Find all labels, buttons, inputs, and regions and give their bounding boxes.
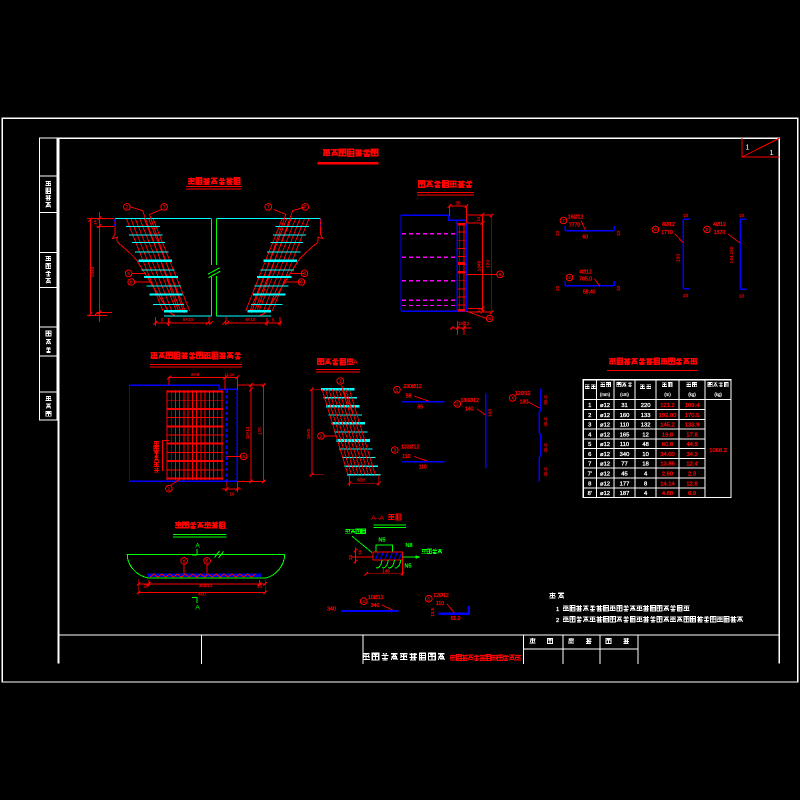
svg-text:4Ø12: 4Ø12 — [579, 269, 592, 275]
svg-text:10Ø12: 10Ø12 — [368, 595, 384, 601]
svg-text:34.00: 34.00 — [660, 452, 675, 458]
svg-text:148: 148 — [382, 568, 390, 573]
svg-text:6: 6 — [706, 227, 709, 232]
svg-text:170.5: 170.5 — [685, 413, 700, 419]
svg-text:12.8: 12.8 — [686, 481, 697, 487]
svg-text:ø12: ø12 — [600, 452, 610, 458]
svg-text:45.0: 45.0 — [543, 467, 549, 477]
svg-text:16×8: 16×8 — [306, 428, 311, 439]
svg-text:110: 110 — [620, 442, 629, 448]
svg-text:2.60: 2.60 — [662, 472, 673, 478]
svg-text:5: 5 — [127, 271, 130, 276]
svg-text:14.14: 14.14 — [660, 481, 675, 487]
svg-text:N8: N8 — [406, 543, 413, 549]
svg-text:10: 10 — [683, 213, 689, 219]
svg-text:14: 14 — [476, 307, 481, 312]
svg-text:340: 340 — [371, 603, 380, 609]
svg-text:ø12: ø12 — [600, 413, 610, 419]
svg-text:ø12: ø12 — [600, 481, 610, 487]
svg-text:18: 18 — [642, 462, 648, 468]
svg-text:58,40: 58,40 — [583, 290, 596, 296]
svg-text:19.8: 19.8 — [662, 432, 673, 438]
svg-text:12.4: 12.4 — [686, 462, 698, 468]
svg-text:13.86: 13.86 — [660, 462, 675, 468]
svg-text:2: 2 — [168, 486, 171, 491]
svg-text:48: 48 — [642, 442, 648, 448]
svg-text:109.4: 109.4 — [685, 403, 700, 409]
svg-text:13.9: 13.9 — [430, 608, 435, 617]
svg-text:(kg): (kg) — [688, 392, 696, 397]
svg-text:8: 8 — [499, 272, 502, 277]
svg-text:340: 340 — [620, 452, 630, 458]
svg-text:10: 10 — [230, 492, 235, 497]
svg-text:17.8: 17.8 — [686, 432, 697, 438]
svg-text:8: 8 — [183, 559, 186, 564]
svg-text:45: 45 — [621, 472, 627, 478]
svg-text:(mm): (mm) — [600, 392, 611, 397]
svg-text:187: 187 — [620, 491, 630, 497]
svg-text:13×13: 13×13 — [245, 426, 250, 439]
svg-text:145.2: 145.2 — [660, 423, 675, 429]
svg-text:58: 58 — [406, 394, 412, 400]
svg-text:1048: 1048 — [90, 266, 96, 277]
svg-text:8: 8 — [588, 481, 591, 487]
svg-text:170: 170 — [486, 260, 492, 268]
svg-text:4.88: 4.88 — [662, 491, 673, 497]
svg-text:7: 7 — [304, 205, 307, 210]
svg-text:ø12: ø12 — [600, 462, 610, 468]
svg-text:1570: 1570 — [714, 230, 726, 236]
svg-text:1: 1 — [339, 379, 342, 384]
svg-text:150: 150 — [675, 254, 681, 262]
svg-text:14: 14 — [358, 550, 363, 555]
svg-text:24: 24 — [348, 555, 353, 560]
svg-text:132: 132 — [641, 423, 651, 429]
svg-text:2: 2 — [320, 434, 323, 439]
svg-text:8: 8 — [644, 481, 647, 487]
svg-text:(cm): (cm) — [620, 392, 629, 397]
svg-text:10: 10 — [739, 293, 745, 299]
svg-text:1: 1 — [396, 387, 399, 392]
svg-text:A: A — [195, 605, 200, 612]
svg-text:60: 60 — [583, 235, 589, 241]
svg-text:7: 7 — [126, 205, 129, 210]
svg-text:340: 340 — [327, 606, 336, 612]
svg-text:110: 110 — [436, 601, 444, 607]
svg-text:160: 160 — [488, 409, 494, 417]
svg-text:5: 5 — [300, 280, 303, 285]
svg-text:N5: N5 — [405, 564, 412, 570]
svg-text:110: 110 — [419, 465, 427, 471]
svg-text:10: 10 — [616, 231, 622, 237]
svg-text:1: 1 — [745, 143, 749, 152]
svg-text:4Ø12: 4Ø12 — [713, 222, 726, 228]
svg-text:2: 2 — [456, 402, 459, 407]
svg-text:1: 1 — [556, 607, 559, 613]
svg-text:A–A: A–A — [371, 515, 384, 522]
svg-text:4: 4 — [362, 599, 365, 604]
svg-text:4: 4 — [242, 454, 245, 459]
svg-text:1: 1 — [769, 148, 773, 157]
svg-text:7770: 7770 — [569, 222, 581, 228]
svg-text:1068.2: 1068.2 — [709, 448, 727, 454]
svg-text:165: 165 — [620, 432, 630, 438]
svg-text:177: 177 — [620, 481, 630, 487]
svg-text:(kg): (kg) — [714, 392, 722, 397]
svg-text:ø12: ø12 — [600, 442, 610, 448]
svg-text:133: 133 — [641, 413, 651, 419]
svg-text:5: 5 — [588, 442, 591, 448]
svg-text:ø12: ø12 — [600, 432, 610, 438]
svg-text:10: 10 — [555, 286, 561, 292]
svg-text:8×8: 8×8 — [191, 372, 199, 377]
svg-text:121.2: 121.2 — [660, 403, 675, 409]
svg-text:180: 180 — [520, 400, 529, 406]
svg-text:77: 77 — [621, 462, 627, 468]
svg-text:12Ø12: 12Ø12 — [515, 391, 531, 397]
svg-text:20: 20 — [257, 583, 263, 588]
svg-text:7: 7 — [267, 205, 270, 210]
svg-text:(m): (m) — [664, 392, 671, 397]
svg-text:35: 35 — [455, 201, 461, 206]
svg-text:144,150: 144,150 — [729, 246, 734, 263]
svg-text:1770: 1770 — [661, 230, 673, 236]
svg-text:7: 7 — [562, 218, 565, 223]
svg-text:5: 5 — [488, 316, 491, 321]
svg-text:1: 1 — [588, 403, 591, 409]
svg-text:ø12: ø12 — [600, 403, 610, 409]
svg-text:3: 3 — [394, 448, 397, 453]
svg-text:45.0: 45.0 — [543, 417, 549, 427]
svg-text:180Ø12: 180Ø12 — [460, 398, 479, 404]
svg-text:8: 8 — [130, 280, 133, 285]
svg-text:60.8: 60.8 — [662, 442, 673, 448]
svg-text:6: 6 — [654, 227, 657, 232]
svg-text:3: 3 — [588, 423, 591, 429]
svg-text:785.0: 785.0 — [579, 276, 592, 282]
svg-text:10: 10 — [683, 293, 689, 299]
svg-text:2.3: 2.3 — [688, 472, 696, 478]
svg-text:55.0: 55.0 — [543, 395, 549, 405]
svg-text:65: 65 — [418, 404, 424, 410]
svg-text:11,10: 11,10 — [225, 372, 235, 377]
svg-text:140: 140 — [465, 407, 474, 413]
svg-text:12Ø12: 12Ø12 — [433, 593, 449, 599]
svg-text:34.2: 34.2 — [686, 452, 697, 458]
svg-text:44.9: 44.9 — [686, 442, 697, 448]
svg-text:8Ø12: 8Ø12 — [662, 222, 675, 228]
svg-text:192.00: 192.00 — [659, 413, 677, 419]
svg-text:1048: 1048 — [476, 260, 482, 271]
svg-text:4: 4 — [568, 275, 571, 280]
svg-text:132Ø12: 132Ø12 — [401, 445, 420, 451]
svg-text:6.9: 6.9 — [688, 491, 696, 497]
svg-text:5: 5 — [206, 559, 209, 564]
svg-text:600: 600 — [357, 478, 365, 483]
svg-text:6: 6 — [588, 452, 591, 458]
svg-text:A: A — [353, 360, 358, 367]
svg-text:110: 110 — [402, 454, 410, 460]
svg-text:55.0: 55.0 — [451, 616, 461, 622]
svg-text:230Ø12: 230Ø12 — [403, 384, 422, 390]
svg-text:ø12: ø12 — [600, 472, 610, 478]
svg-text:20: 20 — [143, 583, 149, 588]
svg-text:2: 2 — [556, 618, 559, 624]
svg-text:5×10: 5×10 — [183, 317, 193, 322]
svg-text:400: 400 — [198, 591, 206, 596]
svg-text:7': 7' — [588, 472, 592, 478]
svg-text:A: A — [195, 543, 200, 550]
svg-text:38Ø13: 38Ø13 — [199, 583, 213, 588]
svg-text:ø12: ø12 — [600, 423, 610, 429]
svg-text:14: 14 — [476, 216, 481, 221]
svg-text:110: 110 — [620, 423, 629, 429]
svg-text:45.0: 45.0 — [543, 443, 549, 453]
svg-text:2: 2 — [588, 413, 591, 419]
svg-text:10: 10 — [616, 286, 622, 292]
svg-text:10: 10 — [642, 452, 648, 458]
svg-text:7: 7 — [163, 205, 166, 210]
svg-text:31: 31 — [621, 403, 627, 409]
svg-text:7: 7 — [588, 462, 591, 468]
svg-text:175: 175 — [257, 427, 262, 435]
svg-text:12: 12 — [642, 432, 648, 438]
svg-text:ø12: ø12 — [600, 491, 610, 497]
svg-text:6×10: 6×10 — [245, 317, 255, 322]
svg-text:10: 10 — [555, 231, 561, 237]
svg-text:133.9: 133.9 — [685, 423, 700, 429]
svg-text:10: 10 — [739, 213, 745, 219]
svg-text:8: 8 — [303, 271, 306, 276]
svg-text:16Ø12: 16Ø12 — [568, 214, 584, 220]
svg-text:8': 8' — [588, 491, 592, 497]
svg-text:14: 14 — [93, 220, 98, 225]
svg-text:4: 4 — [511, 396, 514, 401]
svg-text:160: 160 — [620, 413, 630, 419]
svg-text:N5: N5 — [379, 538, 386, 544]
svg-text:5: 5 — [427, 596, 430, 601]
svg-text:220: 220 — [641, 403, 651, 409]
svg-text:12: 12 — [464, 321, 469, 326]
svg-text:10: 10 — [458, 321, 463, 326]
